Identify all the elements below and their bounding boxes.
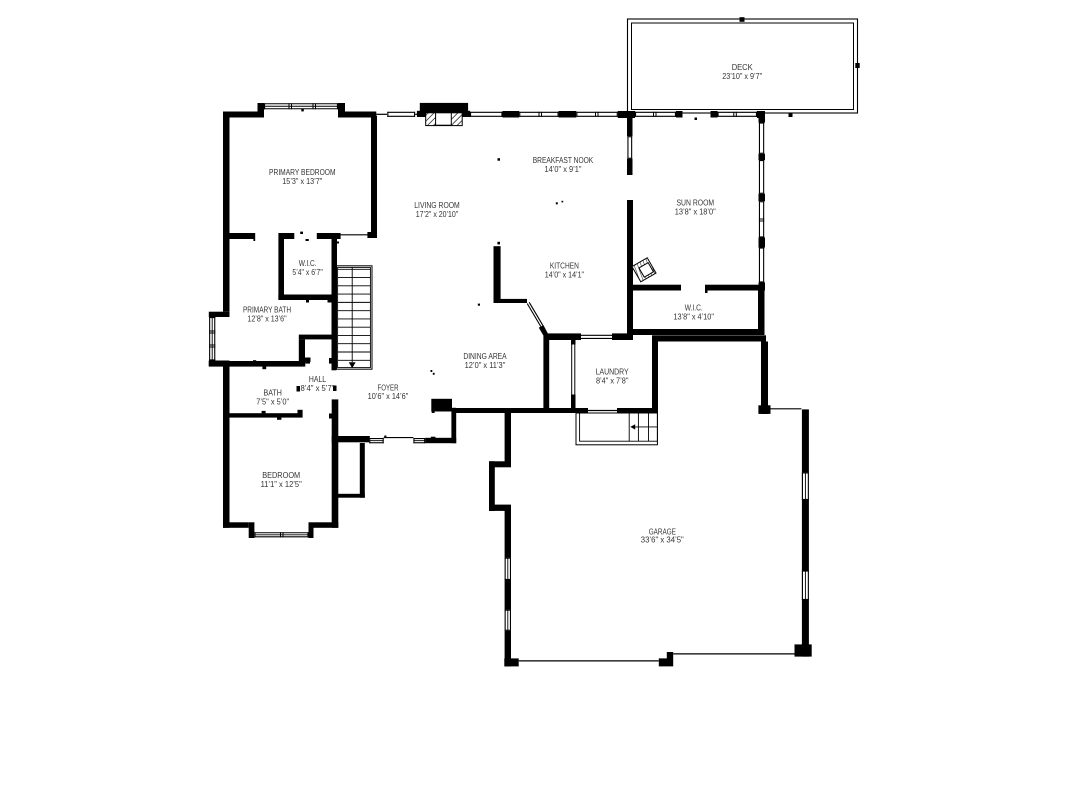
svg-text:DECK: DECK [732,63,754,72]
svg-text:BREAKFAST NOOK: BREAKFAST NOOK [533,156,594,165]
svg-text:13’8" x 18’0": 13’8" x 18’0" [675,207,716,216]
svg-text:13’8" x 4’10": 13’8" x 4’10" [673,313,714,322]
svg-text:HALL: HALL [309,375,327,384]
svg-text:W.I.C.: W.I.C. [299,259,317,268]
svg-text:DINING AREA: DINING AREA [463,352,507,361]
svg-text:8’4" x 5’7": 8’4" x 5’7" [301,384,335,393]
svg-text:BATH: BATH [264,389,283,398]
svg-text:17’2" x 20’10": 17’2" x 20’10" [416,210,459,219]
svg-text:15’3" x 13’7": 15’3" x 13’7" [282,177,322,186]
svg-text:LIVING ROOM: LIVING ROOM [414,201,460,210]
svg-text:10’6" x 14’6": 10’6" x 14’6" [368,392,409,401]
svg-text:11’1" x 12’5": 11’1" x 12’5" [261,480,302,489]
svg-text:SUN ROOM: SUN ROOM [677,198,715,207]
svg-text:7’5" x 5’0": 7’5" x 5’0" [256,398,289,407]
svg-text:PRIMARY BEDROOM: PRIMARY BEDROOM [269,168,336,177]
svg-text:33’6" x 34’5": 33’6" x 34’5" [641,536,684,545]
svg-text:8’4" x 7’8": 8’4" x 7’8" [596,376,629,385]
svg-text:W.I.C.: W.I.C. [685,304,703,313]
svg-text:PRIMARY BATH: PRIMARY BATH [243,306,291,315]
svg-text:14’0" x 9’1": 14’0" x 9’1" [545,165,582,174]
svg-text:23’10" x 9’7": 23’10" x 9’7" [722,72,762,81]
svg-text:14’0" x 14’1": 14’0" x 14’1" [545,271,584,280]
svg-text:12’0" x 11’3": 12’0" x 11’3" [465,361,506,370]
svg-text:5’4" x 6’7": 5’4" x 6’7" [292,268,323,277]
svg-text:LAUNDRY: LAUNDRY [596,367,630,376]
svg-text:KITCHEN: KITCHEN [550,262,579,271]
svg-text:12’8" x 13’6": 12’8" x 13’6" [247,315,286,324]
svg-text:BEDROOM: BEDROOM [262,471,300,480]
